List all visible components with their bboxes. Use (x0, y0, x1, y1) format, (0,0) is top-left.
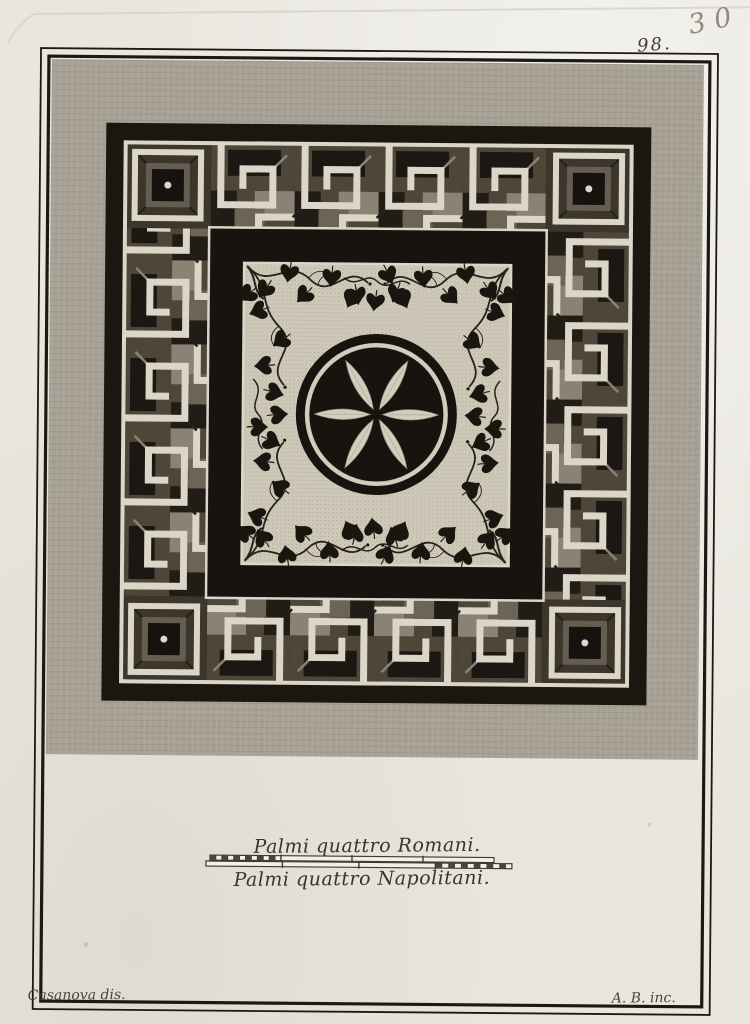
designer-credit: Casanova dis. (28, 987, 126, 1004)
mosaic-panel (101, 123, 651, 706)
rosette-medallion (300, 338, 453, 491)
caption-palmi-napolitani: Palmi quattro Napolitani. (207, 867, 517, 892)
engraver-credit: A. B. inc. (612, 990, 676, 1007)
meander-corner-bottom-right (541, 599, 628, 686)
caption-palmi-romani: Palmi quattro Romani. (227, 834, 507, 858)
engraved-plate: 30 98. Palmi quattro Romani. Palmi quatt… (0, 0, 750, 1024)
meander-corner-bottom-left (121, 596, 208, 683)
scanned-plate-sheet: 30 98. Palmi quattro Romani. Palmi quatt… (0, 0, 750, 1024)
paper-speck (647, 823, 651, 827)
plate-number: 98. (636, 33, 672, 57)
meander-corner-top-right (545, 145, 632, 232)
meander-corner-top-left (124, 142, 211, 229)
paper-speck (84, 942, 89, 947)
